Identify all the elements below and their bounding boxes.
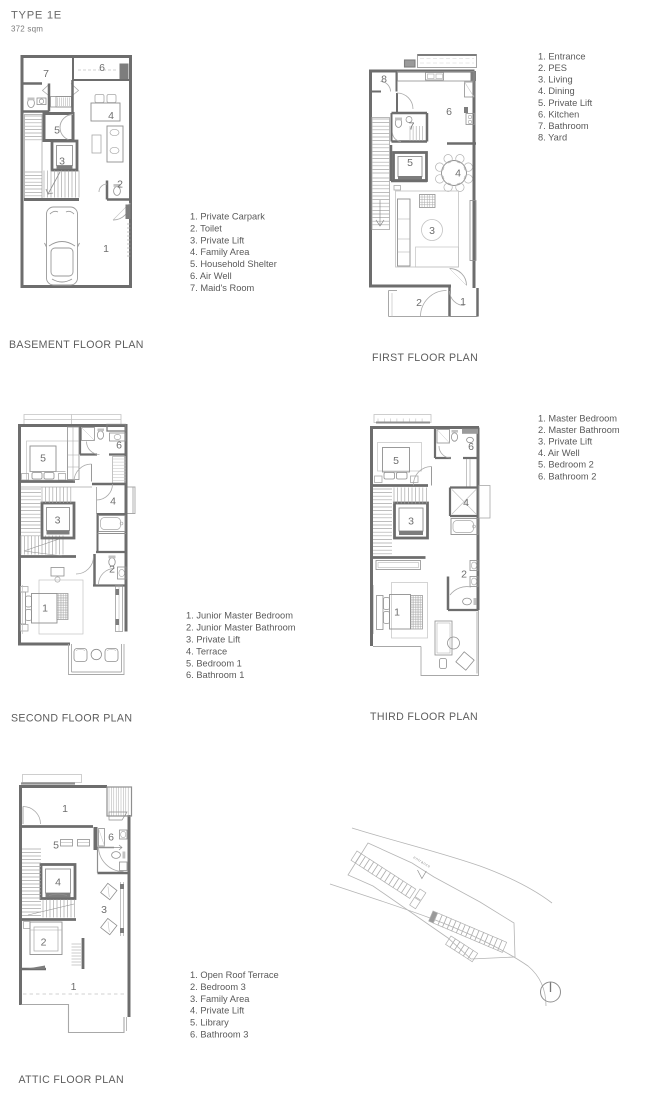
svg-text:4: 4 [55,877,61,889]
svg-text:6. Kitchen: 6. Kitchen [538,109,579,119]
svg-text:5: 5 [53,840,59,852]
svg-text:3. Private Lift: 3. Private Lift [538,437,593,447]
svg-text:3. Living: 3. Living [538,75,573,85]
svg-text:3: 3 [408,516,414,528]
svg-text:1: 1 [71,981,77,993]
svg-text:2: 2 [41,937,47,949]
svg-text:1: 1 [394,607,400,619]
svg-text:2. Toilet: 2. Toilet [190,223,222,233]
svg-text:2. Junior Master Bathroom: 2. Junior Master Bathroom [186,623,296,633]
svg-text:FIRST FLOOR PLAN: FIRST FLOOR PLAN [372,352,478,364]
svg-text:2. Bedroom 3: 2. Bedroom 3 [190,982,246,992]
svg-text:3: 3 [59,156,65,168]
svg-text:1. Open Roof Terrace: 1. Open Roof Terrace [190,970,279,980]
svg-text:TYPE 1E: TYPE 1E [11,10,62,22]
svg-text:8. Yard: 8. Yard [538,133,567,143]
svg-text:4. Air Well: 4. Air Well [538,448,580,458]
svg-text:THIRD FLOOR PLAN: THIRD FLOOR PLAN [370,711,478,723]
svg-text:BASEMENT FLOOR PLAN: BASEMENT FLOOR PLAN [9,339,144,351]
svg-text:5: 5 [393,455,399,467]
svg-text:3. Private Lift: 3. Private Lift [186,635,241,645]
svg-text:1. Master Bedroom: 1. Master Bedroom [538,413,617,423]
svg-text:4: 4 [455,168,461,180]
svg-text:5. Bedroom 1: 5. Bedroom 1 [186,658,242,668]
svg-text:6: 6 [446,106,452,118]
svg-text:2: 2 [109,564,115,576]
svg-text:6. Air Well: 6. Air Well [190,271,232,281]
svg-text:5: 5 [54,125,60,137]
svg-text:6. Bathroom 1: 6. Bathroom 1 [186,670,244,680]
svg-text:7: 7 [409,121,415,133]
svg-text:7. Bathroom: 7. Bathroom [538,121,589,131]
svg-text:6: 6 [99,62,105,74]
svg-text:4. Private Lift: 4. Private Lift [190,1006,245,1016]
svg-text:1: 1 [42,603,48,615]
svg-text:1: 1 [103,243,109,255]
svg-text:2: 2 [117,179,123,191]
svg-text:7. Maid's Room: 7. Maid's Room [190,283,255,293]
svg-text:4. Terrace: 4. Terrace [186,646,227,656]
svg-text:4: 4 [108,110,114,122]
svg-text:6. Bathroom 3: 6. Bathroom 3 [190,1030,248,1040]
svg-text:2. Master Bathroom: 2. Master Bathroom [538,425,620,435]
svg-text:5. Household Shelter: 5. Household Shelter [190,259,277,269]
svg-text:1. Private Carpark: 1. Private Carpark [190,212,265,222]
svg-text:ATTIC FLOOR PLAN: ATTIC FLOOR PLAN [19,1074,124,1086]
svg-text:4: 4 [463,497,469,509]
svg-text:SECOND FLOOR PLAN: SECOND FLOOR PLAN [11,713,132,725]
svg-text:2: 2 [461,569,467,581]
svg-text:5: 5 [407,157,413,169]
svg-text:3. Family Area: 3. Family Area [190,994,250,1004]
svg-text:3. Private Lift: 3. Private Lift [190,235,245,245]
svg-text:4: 4 [110,496,116,508]
svg-text:5: 5 [40,453,46,465]
svg-text:3: 3 [55,515,61,527]
svg-text:4. Family Area: 4. Family Area [190,247,250,257]
svg-text:6: 6 [116,440,122,452]
svg-text:1: 1 [62,803,68,815]
svg-text:5. Private Lift: 5. Private Lift [538,98,593,108]
svg-text:5. Library: 5. Library [190,1018,229,1028]
svg-text:372 sqm: 372 sqm [11,25,43,34]
svg-text:6. Bathroom 2: 6. Bathroom 2 [538,471,596,481]
svg-text:6: 6 [468,441,474,453]
svg-text:4. Dining: 4. Dining [538,86,575,96]
svg-text:3: 3 [429,225,435,237]
svg-text:1: 1 [460,296,466,308]
svg-text:1. Entrance: 1. Entrance [538,51,586,61]
svg-text:8: 8 [381,74,387,86]
svg-text:2. PES: 2. PES [538,63,567,73]
svg-text:1. Junior Master Bedroom: 1. Junior Master Bedroom [186,611,293,621]
svg-text:3: 3 [101,904,107,916]
svg-text:6: 6 [108,832,114,844]
svg-text:2: 2 [416,297,422,309]
svg-text:5. Bedroom 2: 5. Bedroom 2 [538,460,594,470]
svg-text:7: 7 [43,68,49,80]
